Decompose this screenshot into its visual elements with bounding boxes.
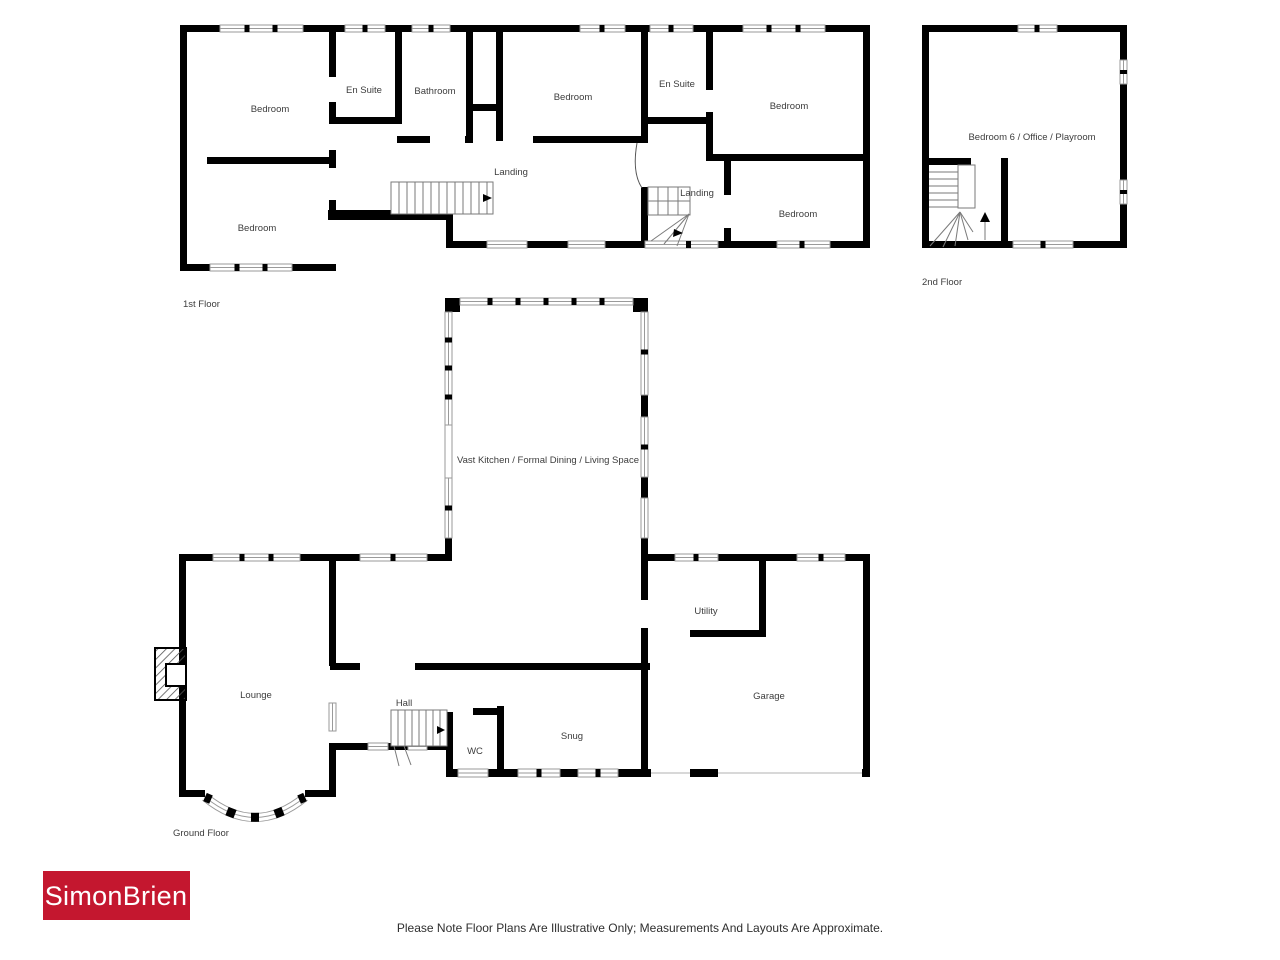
first-floor-windows — [210, 25, 830, 271]
room-label-bedroom-middle: Bedroom — [554, 92, 593, 103]
room-label-landing-right: Landing — [680, 188, 714, 199]
room-label-wc: WC — [467, 746, 483, 757]
ground-floor-plan: Vast Kitchen / Formal Dining / Living Sp… — [155, 298, 870, 839]
disclaimer-text: Please Note Floor Plans Are Illustrative… — [397, 921, 883, 935]
floor-plan-canvas: Bedroom En Suite Bathroom Bedroom En Sui… — [0, 0, 1280, 960]
room-label-bedroom-bottom-right: Bedroom — [779, 209, 818, 220]
ground-floor-windows — [213, 298, 862, 777]
room-label-bedroom-top-left: Bedroom — [251, 104, 290, 115]
room-label-utility: Utility — [694, 606, 717, 617]
second-floor-plan: Bedroom 6 / Office / Playroom 2nd Floor — [922, 25, 1127, 288]
stair-void-line — [635, 143, 642, 188]
room-label-bedroom-bottom-left: Bedroom — [238, 223, 277, 234]
room-label-en-suite-right: En Suite — [659, 79, 695, 90]
room-label-bathroom: Bathroom — [414, 86, 455, 97]
room-label-en-suite-left: En Suite — [346, 85, 382, 96]
second-floor-stairs — [929, 165, 990, 247]
floor-caption-second: 2nd Floor — [922, 277, 962, 288]
ground-floor-stairs — [391, 710, 447, 766]
room-label-garage: Garage — [753, 691, 785, 702]
room-label-lounge: Lounge — [240, 690, 272, 701]
room-label-bedroom6-office-playroom: Bedroom 6 / Office / Playroom — [968, 132, 1095, 143]
room-label-landing-left: Landing — [494, 167, 528, 178]
ground-floor-walls — [179, 298, 870, 797]
room-label-kitchen: Vast Kitchen / Formal Dining / Living Sp… — [457, 455, 639, 466]
room-label-snug: Snug — [561, 731, 583, 742]
room-label-hall: Hall — [396, 698, 412, 709]
second-floor-labels: Bedroom 6 / Office / Playroom 2nd Floor — [922, 132, 1096, 288]
agency-logo: SimonBrien — [43, 871, 190, 920]
first-floor-plan: Bedroom En Suite Bathroom Bedroom En Sui… — [180, 25, 870, 310]
first-floor-stairs-main — [391, 182, 493, 214]
lounge-bay-window — [205, 797, 305, 818]
floor-caption-first: 1st Floor — [183, 299, 220, 310]
floor-caption-ground: Ground Floor — [173, 828, 229, 839]
ground-floor-labels: Vast Kitchen / Formal Dining / Living Sp… — [173, 455, 785, 839]
floorplan-page: Bedroom En Suite Bathroom Bedroom En Sui… — [0, 0, 1280, 960]
first-floor-walls — [180, 25, 870, 271]
lounge-chimney — [155, 648, 186, 700]
room-label-bedroom-top-right: Bedroom — [770, 101, 809, 112]
logo-text: SimonBrien — [45, 881, 188, 911]
